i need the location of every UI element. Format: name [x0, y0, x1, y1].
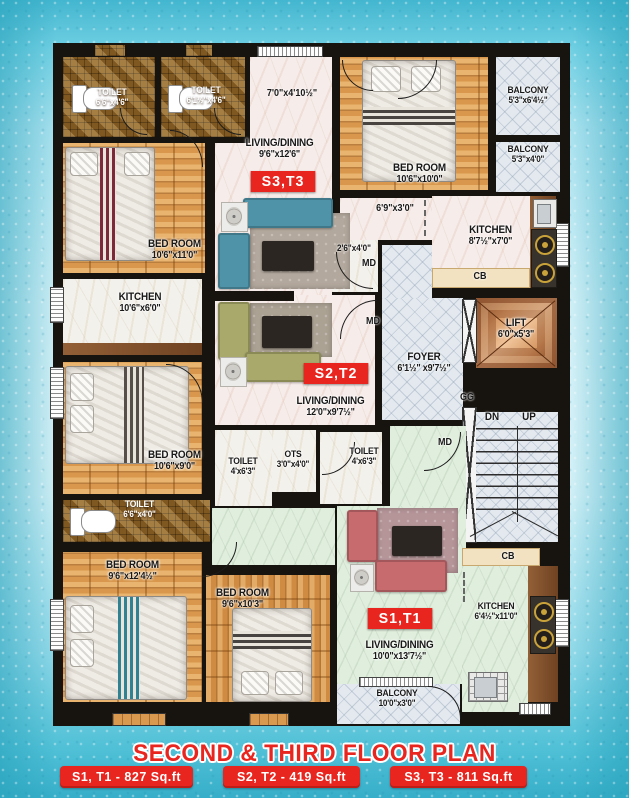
- table-fan: [350, 564, 374, 592]
- label-dim-lobby: 7'0"x4'10½": [252, 88, 333, 99]
- room-label-lift: LIFT6'0"x5'3": [480, 318, 552, 341]
- wall-segment: [202, 291, 294, 301]
- sofa: [347, 510, 378, 562]
- label-md: MD: [356, 258, 381, 269]
- wall-vent: [186, 45, 212, 56]
- room-label-balcony-tr2: BALCONY5'3"x4'0": [492, 145, 564, 165]
- label-up: UP: [516, 411, 541, 423]
- stove-burners: [531, 229, 557, 288]
- label-dim-md-door: 2'6"x4'0": [331, 243, 378, 253]
- room-foyer-upper: [382, 245, 432, 300]
- label-dim-passage: 6'9"x3'0": [355, 203, 436, 214]
- room-label-toilet-m1: TOILET4'x6'3": [216, 457, 270, 477]
- room-label-ots: OTS3'0"x4'0": [270, 450, 317, 470]
- room-label-living-s2: LIVING/DINING12'0"x9'7½": [288, 396, 374, 419]
- label-cb: CB: [462, 271, 498, 282]
- sofa: [375, 560, 447, 592]
- page-title: SECOND & THIRD FLOOR PLAN: [16, 740, 614, 768]
- window-sill: [250, 714, 288, 725]
- room-label-kitchen-ml: KITCHEN10'6"x6'0": [100, 292, 181, 315]
- room-lobby-s3: [250, 57, 332, 143]
- bed: [65, 596, 187, 700]
- kitchen-sink: [468, 672, 508, 702]
- stair-chevron: [512, 511, 558, 536]
- room-label-living-s1: LIVING/DINING10'0"x13'7½": [357, 640, 443, 663]
- area-badge-s1: S1, T1 - 827 Sq.ft: [60, 766, 193, 788]
- window-sill: [113, 714, 165, 725]
- room-label-balcony-tr1: BALCONY5'3"x6'4½": [492, 86, 564, 106]
- area-badge-s3: S3, T3 - 811 Sq.ft: [390, 766, 527, 788]
- room-label-toilet-m2: TOILET4'x6'3": [341, 447, 388, 467]
- room-label-bedroom-bl: BED ROOM9'6"x12'4½": [90, 560, 176, 583]
- stair-divider: [517, 426, 518, 522]
- unit-badge-s1: S1,T1: [368, 608, 433, 629]
- label-cb: CB: [490, 551, 526, 562]
- balcony-sliding-door: [360, 678, 432, 686]
- wall-vent: [95, 45, 125, 56]
- label-md: MD: [361, 316, 384, 327]
- stair-chevron: [470, 512, 516, 537]
- window: [556, 224, 568, 266]
- room-label-bedroom-bm: BED ROOM9'6"x10'3": [200, 588, 286, 611]
- room-label-kitchen-tr: KITCHEN8'7½"x7'0": [452, 225, 529, 248]
- window: [258, 47, 322, 56]
- room-label-living-s3: LIVING/DINING9'6"x12'6": [237, 138, 323, 161]
- label-gg: GG: [454, 392, 479, 403]
- room-label-foyer: FOYER6'1½" x9'7½": [383, 352, 466, 375]
- table-fan: [221, 202, 248, 232]
- coffee-table: [262, 241, 314, 271]
- label-md: MD: [433, 437, 456, 448]
- stove-burners: [530, 596, 556, 654]
- room-label-toilet-tl2: TOILET6'1½"x4'6": [170, 86, 242, 106]
- room-label-kitchen-br: KITCHEN6'4½"x11'0": [462, 602, 530, 622]
- tv-table: [262, 316, 312, 348]
- bed: [232, 608, 312, 702]
- room-label-toilet-bl: TOILET6'6"x4'0": [101, 500, 178, 520]
- sofa: [243, 198, 333, 228]
- window: [554, 600, 568, 646]
- room-label-balcony-s1: BALCONY10'0"x3'0": [361, 689, 433, 709]
- table-fan: [220, 357, 247, 387]
- sofa: [218, 233, 250, 289]
- sofa: [218, 302, 250, 360]
- area-badge-s2: S2, T2 - 419 Sq.ft: [223, 766, 360, 788]
- kitchen-sink: [533, 199, 557, 228]
- coffee-table: [392, 526, 442, 556]
- window: [51, 288, 63, 322]
- room-label-bedroom-tr: BED ROOM10'6"x10'0": [377, 163, 463, 186]
- window: [51, 600, 63, 650]
- unit-badge-s3: S3,T3: [251, 171, 316, 192]
- window: [51, 368, 63, 418]
- kitchen-ml-counter: [63, 343, 202, 355]
- window: [520, 704, 550, 714]
- label-dn: DN: [479, 411, 504, 423]
- room-label-toilet-tl1: TOILET6'6"x4'6": [76, 88, 148, 108]
- unit-badge-s2: S2,T2: [304, 363, 369, 384]
- staircase: [476, 412, 558, 542]
- room-label-bedroom-tl: BED ROOM10'6"x11'0": [132, 239, 218, 262]
- open-passage-marker: [463, 572, 465, 602]
- room-label-bedroom-ml: BED ROOM10'6"x9'0": [132, 450, 218, 473]
